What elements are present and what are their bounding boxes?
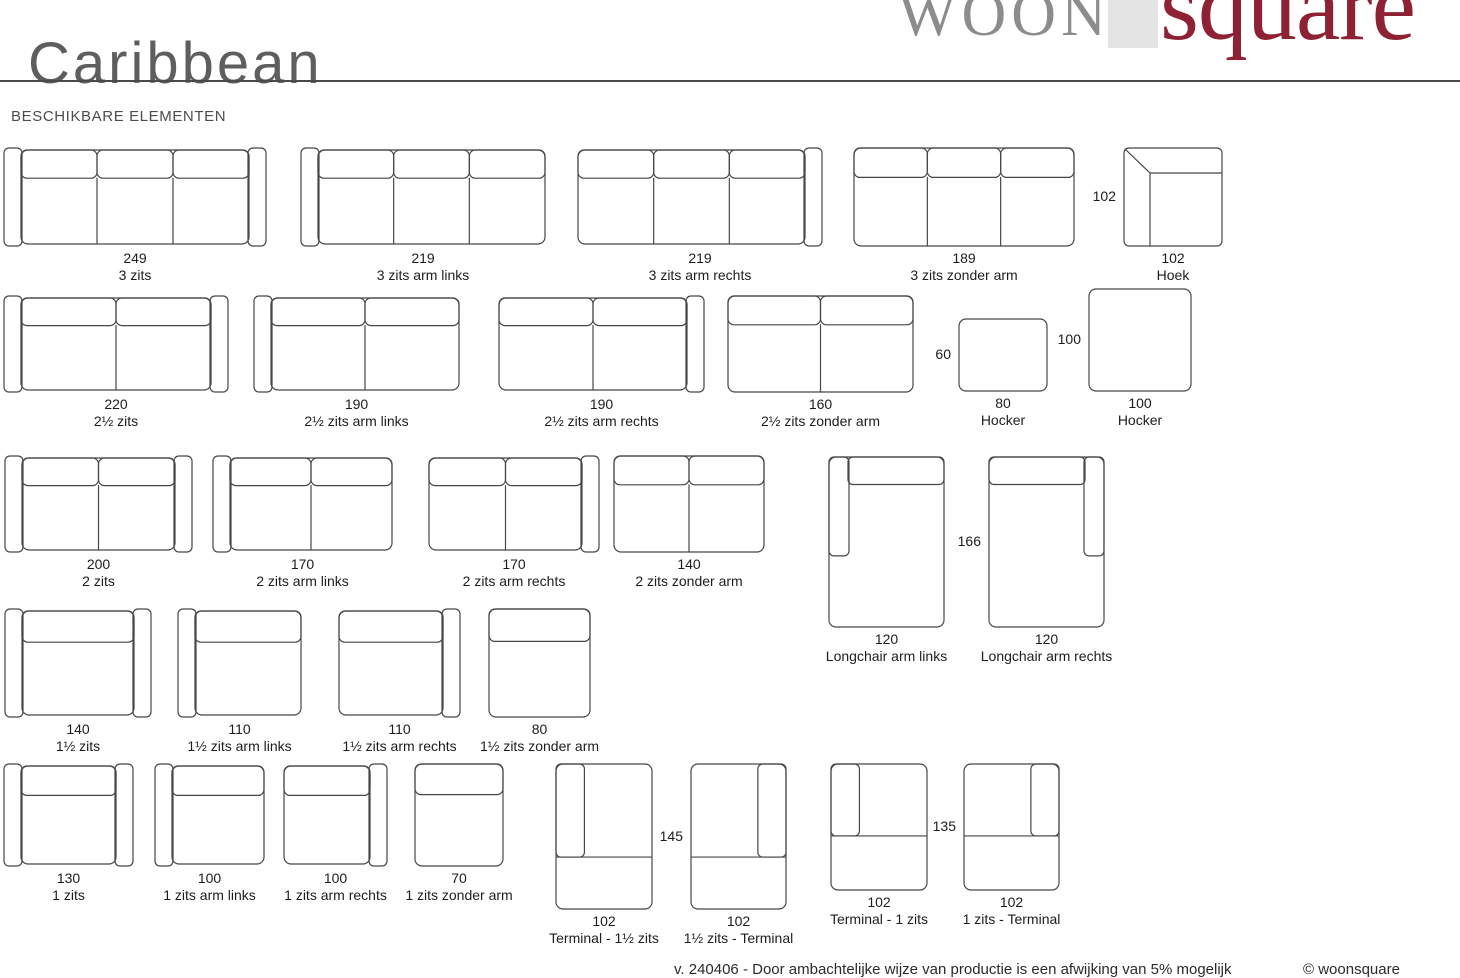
element-1-zits-arm-rechts: 1001 zits arm rechts bbox=[283, 763, 388, 903]
element-terminal-1-zits: 102Terminal - 1 zits bbox=[830, 763, 928, 927]
figure-2half-zits bbox=[3, 295, 229, 393]
logo-woon-text: WOON bbox=[898, 0, 1111, 51]
element-label: 1 zits arm links bbox=[163, 887, 256, 904]
element-1half-zits-terminal: 1021½ zits - Terminal145 bbox=[690, 763, 787, 946]
figure-1-zits-zonder-arm bbox=[414, 763, 504, 867]
figure-2-zits bbox=[4, 455, 193, 553]
element-2half-zits: 2202½ zits bbox=[3, 295, 229, 429]
figure-3-zits bbox=[3, 147, 267, 247]
figure-3-zits-arm-rechts bbox=[577, 147, 823, 247]
footer-copyright: © woonsquare bbox=[1303, 961, 1400, 978]
dim-value: 102 bbox=[1000, 894, 1023, 911]
dim-value: 140 bbox=[677, 556, 700, 573]
dim-value: 220 bbox=[104, 396, 127, 413]
figure-1half-zits-arm-links bbox=[177, 608, 302, 718]
element-label: 1½ zits zonder arm bbox=[480, 738, 599, 755]
element-1-zits: 1301 zits bbox=[3, 763, 134, 903]
side-dim-label: 102 bbox=[1093, 188, 1116, 204]
element-terminal-1half-zits: 102Terminal - 1½ zits bbox=[555, 763, 653, 946]
dim-value: 219 bbox=[688, 250, 711, 267]
figure-2half-zits-arm-links bbox=[253, 295, 460, 393]
element-label: 2 zits zonder arm bbox=[635, 573, 742, 590]
element-3-zits-zonder-arm: 1893 zits zonder arm bbox=[853, 147, 1075, 283]
figure-hocker-80 bbox=[958, 318, 1048, 392]
element-2-zits-arm-rechts: 1702 zits arm rechts bbox=[428, 455, 600, 589]
figure-2half-zits-zonder-arm bbox=[727, 295, 914, 393]
element-label: 3 zits zonder arm bbox=[910, 267, 1017, 284]
element-2half-zits-zonder-arm: 1602½ zits zonder arm bbox=[727, 295, 914, 429]
woonsquare-logo: WOON square bbox=[890, 0, 1460, 74]
figure-longchair-arm-rechts bbox=[988, 456, 1105, 628]
element-longchair-arm-rechts: 120Longchair arm rechts166 bbox=[988, 456, 1105, 664]
dim-value: 100 bbox=[1128, 395, 1151, 412]
dim-value: 120 bbox=[1035, 631, 1058, 648]
element-label: 2 zits arm rechts bbox=[463, 573, 566, 590]
figure-terminal-1-zits bbox=[830, 763, 928, 891]
dim-value: 102 bbox=[592, 913, 615, 930]
element-label: 1½ zits - Terminal bbox=[684, 930, 793, 947]
figure-terminal-1half-zits bbox=[555, 763, 653, 910]
section-heading: BESCHIKBARE ELEMENTEN bbox=[11, 108, 226, 125]
dim-value: 80 bbox=[532, 721, 548, 738]
logo-square-box bbox=[1108, 0, 1158, 48]
element-3-zits: 2493 zits bbox=[3, 147, 267, 283]
dim-value: 102 bbox=[867, 894, 890, 911]
figure-1-zits bbox=[3, 763, 134, 867]
element-1-zits-zonder-arm: 701 zits zonder arm bbox=[414, 763, 504, 903]
figure-2-zits-zonder-arm bbox=[613, 455, 765, 553]
element-label: 2½ zits zonder arm bbox=[761, 413, 880, 430]
element-label: 1 zits arm rechts bbox=[284, 887, 387, 904]
dim-value: 100 bbox=[324, 870, 347, 887]
element-2-zits-zonder-arm: 1402 zits zonder arm bbox=[613, 455, 765, 589]
page-title: Caribbean bbox=[28, 31, 323, 98]
element-label: Hoek bbox=[1157, 267, 1190, 284]
dim-value: 102 bbox=[727, 913, 750, 930]
element-label: 2½ zits arm links bbox=[304, 413, 408, 430]
dim-value: 130 bbox=[57, 870, 80, 887]
element-label: 2½ zits bbox=[94, 413, 138, 430]
element-1half-zits-arm-rechts: 1101½ zits arm rechts bbox=[338, 608, 461, 754]
element-label: Hocker bbox=[1118, 412, 1162, 429]
figure-longchair-arm-links bbox=[828, 456, 945, 628]
element-label: Longchair arm rechts bbox=[981, 648, 1113, 665]
figure-1-zits-terminal bbox=[963, 763, 1060, 891]
side-dim-label: 100 bbox=[1058, 331, 1081, 347]
element-1-zits-terminal: 1021 zits - Terminal135 bbox=[963, 763, 1060, 927]
dim-value: 80 bbox=[995, 395, 1011, 412]
element-3-zits-arm-rechts: 2193 zits arm rechts bbox=[577, 147, 823, 283]
figure-1half-zits-terminal bbox=[690, 763, 787, 910]
figure-hocker-100 bbox=[1088, 288, 1192, 392]
element-label: 3 zits arm rechts bbox=[649, 267, 752, 284]
element-2half-zits-arm-rechts: 1902½ zits arm rechts bbox=[498, 295, 705, 429]
figure-2half-zits-arm-rechts bbox=[498, 295, 705, 393]
dim-value: 200 bbox=[87, 556, 110, 573]
dim-value: 170 bbox=[502, 556, 525, 573]
element-label: 2 zits arm links bbox=[256, 573, 349, 590]
element-label: 1 zits - Terminal bbox=[963, 911, 1061, 928]
figure-3-zits-arm-links bbox=[300, 147, 546, 247]
element-label: Longchair arm links bbox=[826, 648, 947, 665]
dim-value: 249 bbox=[123, 250, 146, 267]
dim-value: 120 bbox=[875, 631, 898, 648]
dim-value: 140 bbox=[66, 721, 89, 738]
element-label: Hocker bbox=[981, 412, 1025, 429]
side-dim-label: 135 bbox=[933, 818, 956, 834]
dim-value: 110 bbox=[388, 721, 410, 738]
side-dim-label: 145 bbox=[660, 828, 683, 844]
element-2-zits-arm-links: 1702 zits arm links bbox=[212, 455, 393, 589]
element-label: 1 zits bbox=[52, 887, 85, 904]
element-label: 1½ zits arm links bbox=[187, 738, 291, 755]
element-longchair-arm-links: 120Longchair arm links bbox=[828, 456, 945, 664]
dim-value: 160 bbox=[809, 396, 832, 413]
element-label: 3 zits bbox=[119, 267, 152, 284]
figure-1half-zits-zonder-arm bbox=[488, 608, 591, 718]
element-label: 1½ zits bbox=[56, 738, 100, 755]
figure-hoek bbox=[1123, 147, 1223, 247]
dim-value: 110 bbox=[228, 721, 250, 738]
figure-1-zits-arm-links bbox=[154, 763, 265, 867]
element-label: 2 zits bbox=[82, 573, 115, 590]
dim-value: 100 bbox=[198, 870, 221, 887]
dim-value: 102 bbox=[1161, 250, 1184, 267]
element-label: Terminal - 1 zits bbox=[830, 911, 928, 928]
element-2-zits: 2002 zits bbox=[4, 455, 193, 589]
element-label: 3 zits arm links bbox=[377, 267, 470, 284]
element-2half-zits-arm-links: 1902½ zits arm links bbox=[253, 295, 460, 429]
side-dim-label: 166 bbox=[958, 533, 981, 549]
figure-1half-zits-arm-rechts bbox=[338, 608, 461, 718]
element-label: Terminal - 1½ zits bbox=[549, 930, 659, 947]
side-dim-label: 60 bbox=[935, 346, 951, 362]
figure-3-zits-zonder-arm bbox=[853, 147, 1075, 247]
element-3-zits-arm-links: 2193 zits arm links bbox=[300, 147, 546, 283]
dim-value: 70 bbox=[451, 870, 467, 887]
element-1-zits-arm-links: 1001 zits arm links bbox=[154, 763, 265, 903]
figure-2-zits-arm-rechts bbox=[428, 455, 600, 553]
dim-value: 190 bbox=[345, 396, 368, 413]
element-hoek: 102Hoek102 bbox=[1123, 147, 1223, 283]
dim-value: 219 bbox=[411, 250, 434, 267]
element-1half-zits: 1401½ zits bbox=[4, 608, 152, 754]
figure-1half-zits bbox=[4, 608, 152, 718]
figure-1-zits-arm-rechts bbox=[283, 763, 388, 867]
element-hocker-100: 100Hocker100 bbox=[1088, 288, 1192, 428]
element-hocker-80: 80Hocker60 bbox=[958, 318, 1048, 428]
element-label: 2½ zits arm rechts bbox=[544, 413, 658, 430]
figure-2-zits-arm-links bbox=[212, 455, 393, 553]
element-label: 1½ zits arm rechts bbox=[342, 738, 456, 755]
footer-note: v. 240406 - Door ambachtelijke wijze van… bbox=[674, 961, 1232, 978]
dim-value: 189 bbox=[952, 250, 975, 267]
header-divider bbox=[0, 80, 1460, 82]
logo-square-text: square bbox=[1160, 0, 1415, 63]
element-label: 1 zits zonder arm bbox=[405, 887, 512, 904]
element-1half-zits-arm-links: 1101½ zits arm links bbox=[177, 608, 302, 754]
element-1half-zits-zonder-arm: 801½ zits zonder arm bbox=[488, 608, 591, 754]
dim-value: 170 bbox=[291, 556, 314, 573]
dim-value: 190 bbox=[590, 396, 613, 413]
